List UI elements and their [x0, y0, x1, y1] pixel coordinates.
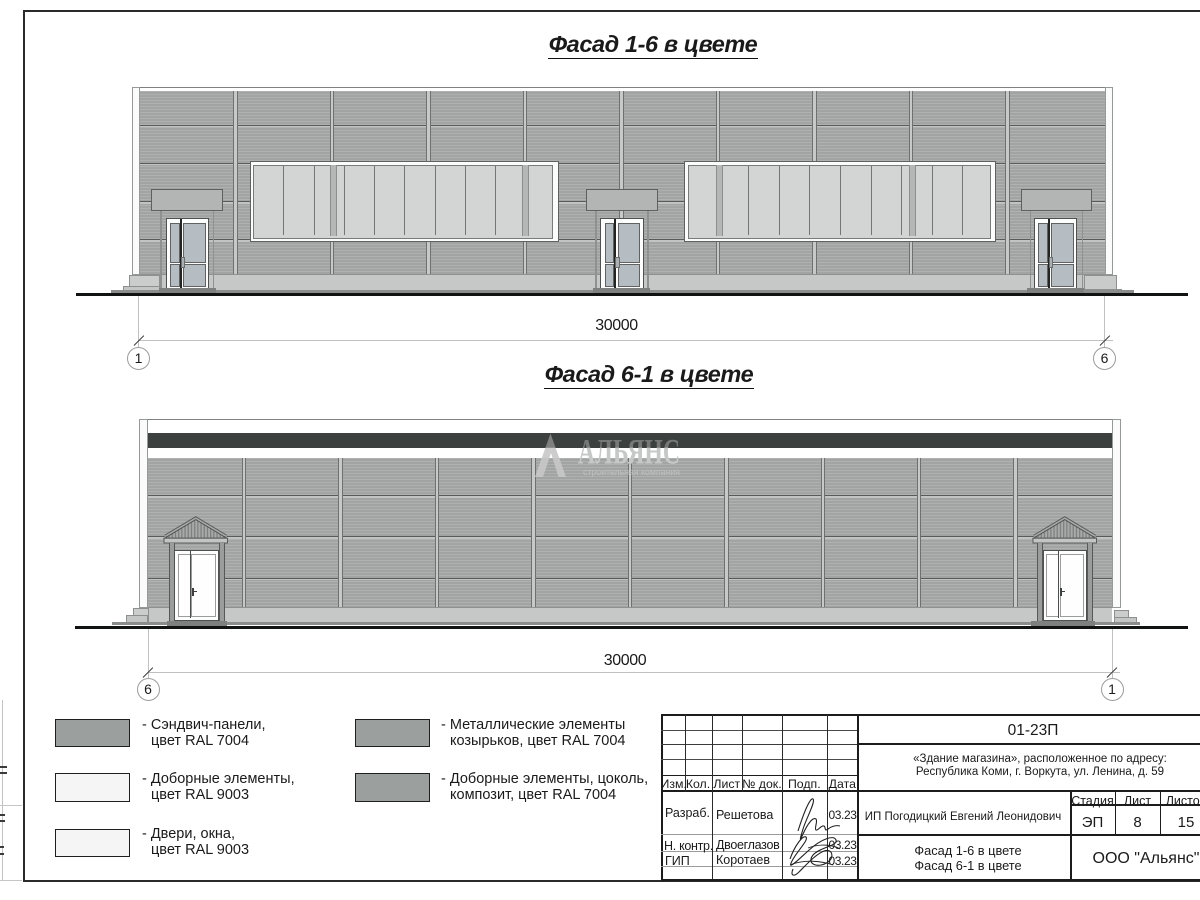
svg-text:строительная компания: строительная компания	[583, 467, 680, 478]
